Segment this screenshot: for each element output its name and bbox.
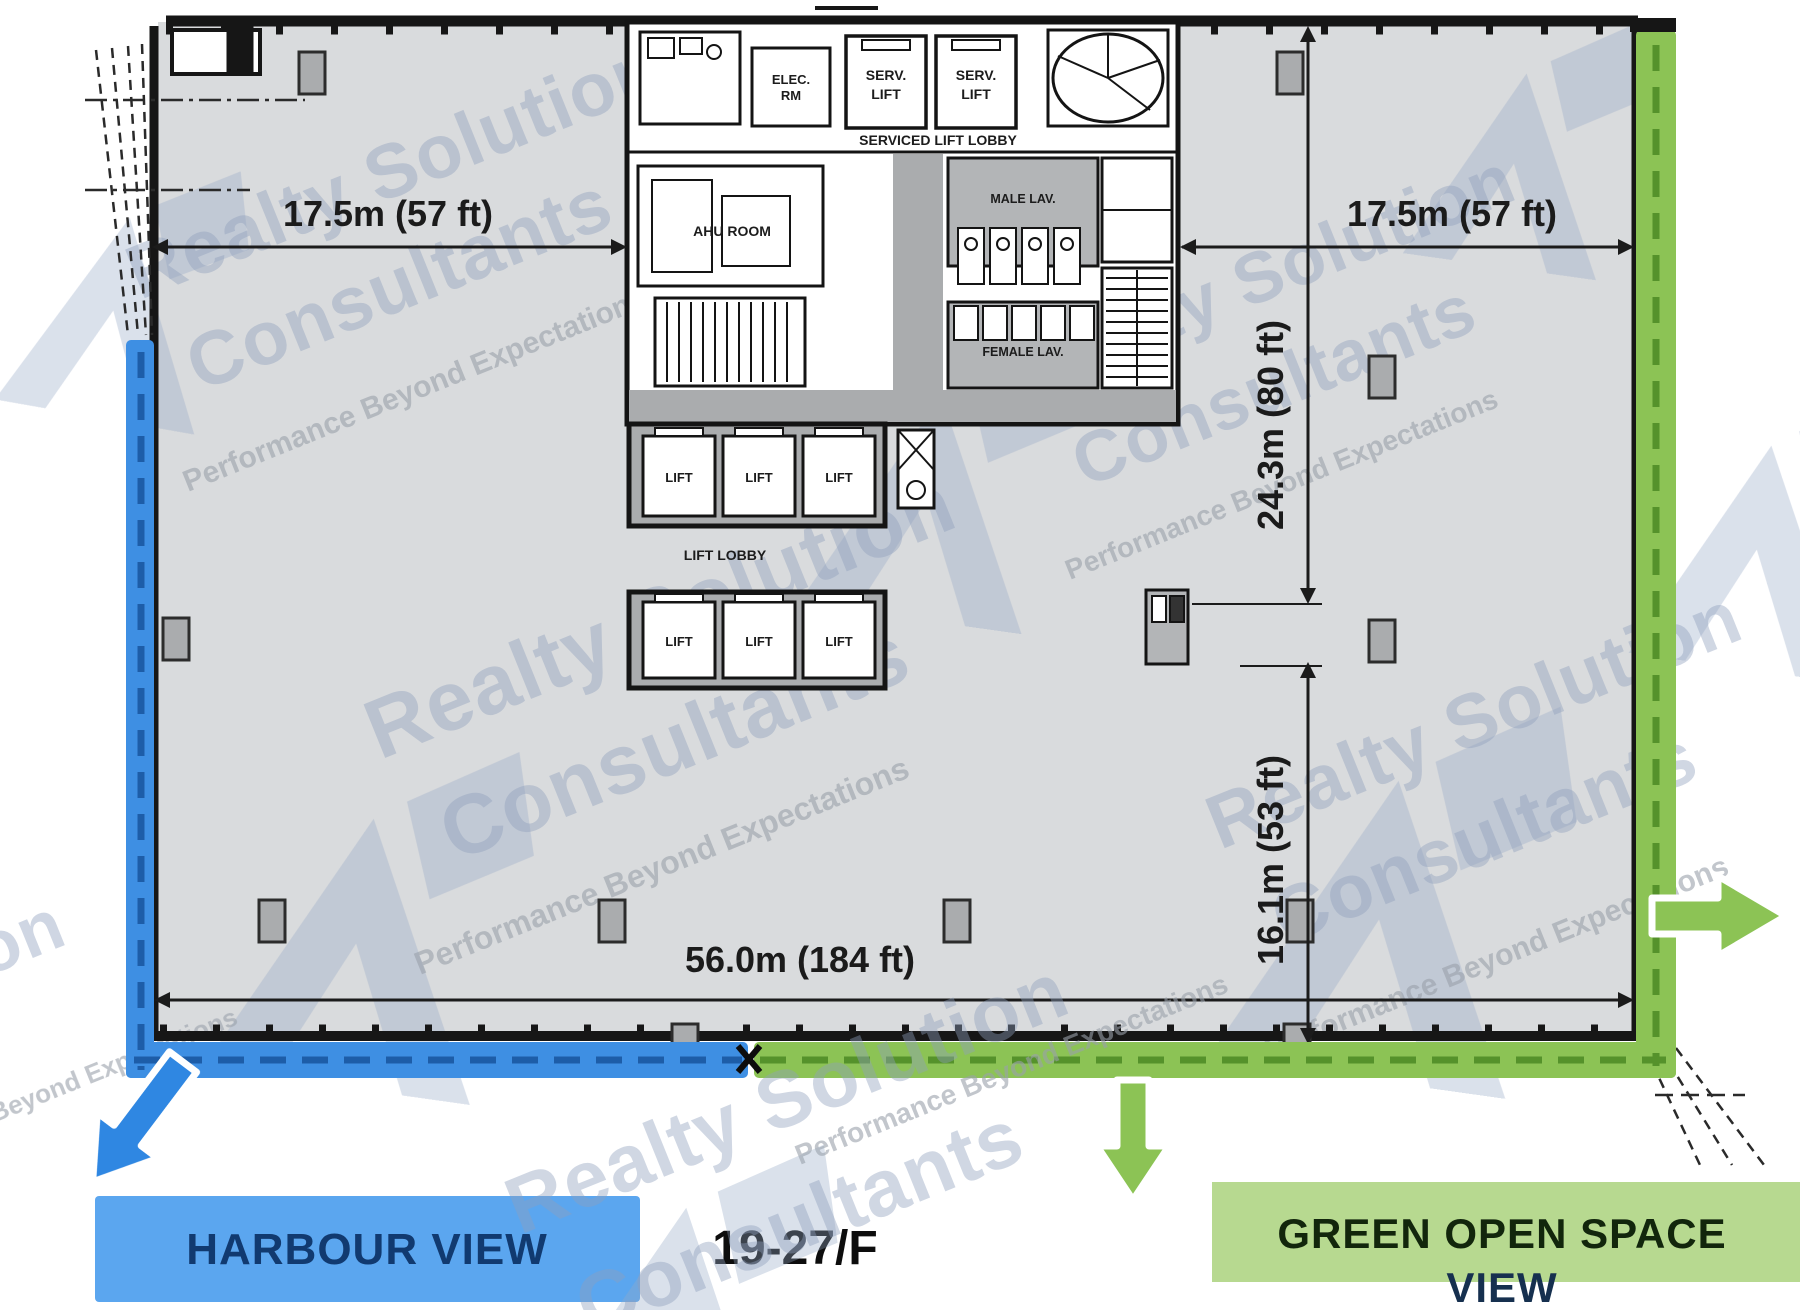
small-shaft bbox=[1146, 590, 1188, 664]
floor-plan-svg: Realty Solution Consultants Performance … bbox=[0, 0, 1800, 1310]
core-corridor-vertical bbox=[893, 154, 943, 390]
ahu-room-label: AHU ROOM bbox=[693, 223, 771, 239]
floor-plan-page: Realty Solution Consultants Performance … bbox=[0, 0, 1800, 1310]
male-lav-label: MALE LAV. bbox=[990, 192, 1055, 206]
dim-left-width: 17.5m (57 ft) bbox=[283, 193, 493, 234]
green-view-label-line2: VIEW bbox=[1446, 1264, 1557, 1310]
serviced-lift-lobby-label: SERVICED LIFT LOBBY bbox=[859, 132, 1017, 148]
serv-lift-label: LIFT bbox=[961, 86, 991, 102]
dim-total-width: 56.0m (184 ft) bbox=[685, 939, 915, 980]
harbour-view-label: HARBOUR VIEW bbox=[186, 1225, 548, 1274]
elec-room-label: ELEC. bbox=[772, 72, 810, 87]
serv-lift-label: SERV. bbox=[956, 67, 996, 83]
elec-room-label: RM bbox=[781, 88, 801, 103]
female-lav-label: FEMALE LAV. bbox=[982, 345, 1063, 359]
green-view-label: GREEN OPEN SPACE bbox=[1277, 1210, 1726, 1257]
lift-label: LIFT bbox=[745, 634, 772, 649]
lift-label: LIFT bbox=[745, 470, 772, 485]
lift-label: LIFT bbox=[825, 470, 852, 485]
lift-lobby-label: LIFT LOBBY bbox=[684, 547, 767, 563]
dim-core-depth: 24.3m (80 ft) bbox=[1250, 320, 1291, 530]
female-lav-stalls bbox=[954, 306, 1094, 340]
core-corridor bbox=[629, 390, 1176, 422]
service-shaft bbox=[898, 430, 934, 508]
lift-label: LIFT bbox=[825, 634, 852, 649]
serv-lift-label: LIFT bbox=[871, 86, 901, 102]
lift-label: LIFT bbox=[665, 470, 692, 485]
dim-lower-depth: 16.1m (53 ft) bbox=[1250, 755, 1291, 965]
dim-right-width: 17.5m (57 ft) bbox=[1347, 193, 1557, 234]
lift-label: LIFT bbox=[665, 634, 692, 649]
green-view-down-arrow bbox=[1097, 1080, 1169, 1200]
serv-lift-label: SERV. bbox=[866, 67, 906, 83]
